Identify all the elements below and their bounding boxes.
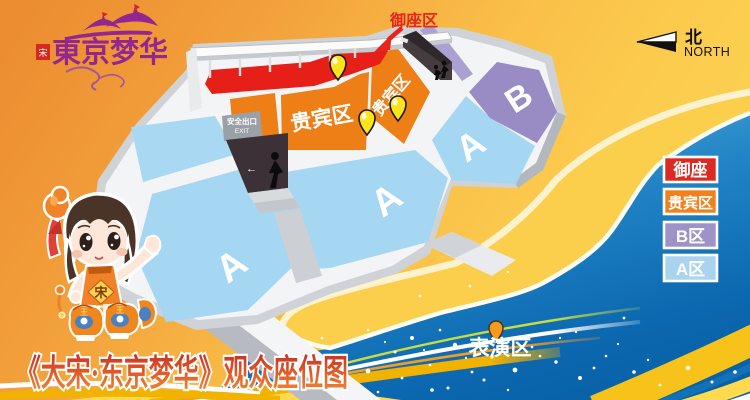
svg-text:御座区: 御座区 [389,11,438,30]
svg-text:←: ← [246,163,257,175]
svg-text:EXIT: EXIT [235,128,249,135]
svg-text:B区: B区 [676,227,705,246]
svg-text:表演区: 表演区 [469,336,532,360]
svg-text:A区: A区 [676,260,705,279]
svg-text:NORTH: NORTH [684,45,730,59]
svg-text:《大宋·东京梦华》观众座位图: 《大宋·东京梦华》观众座位图 [16,352,348,393]
svg-text:王: 王 [80,308,88,317]
svg-text:←: ← [424,67,431,74]
svg-text:贵宾区: 贵宾区 [668,194,713,212]
svg-text:御座: 御座 [673,160,708,180]
svg-text:宋: 宋 [93,285,108,300]
svg-text:東京梦华: 東京梦华 [52,35,168,69]
svg-text:宋: 宋 [38,47,47,58]
svg-text:安全出口: 安全出口 [227,116,257,126]
svg-text:王: 王 [116,306,124,315]
